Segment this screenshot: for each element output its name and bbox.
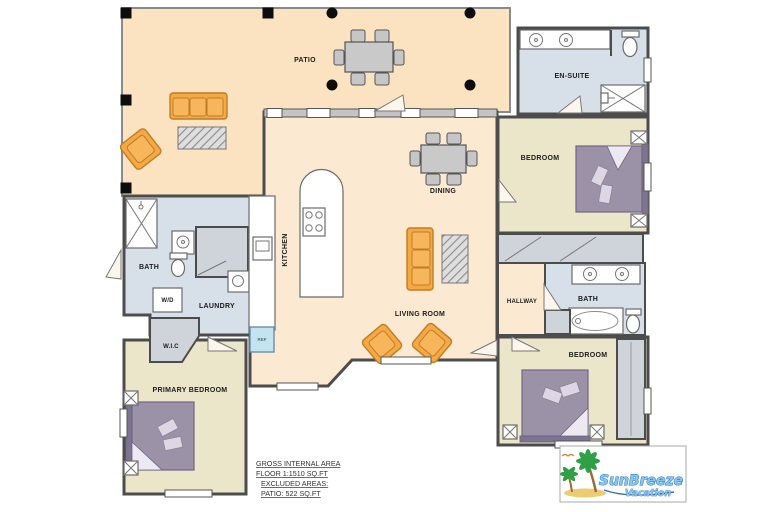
shower-left	[126, 199, 157, 248]
area-line-2: FLOOR 1:1510 SQ.FT	[256, 469, 329, 478]
primary-window-left	[120, 409, 127, 437]
bedroom-right-window-side	[644, 388, 651, 414]
laundry-closet	[196, 227, 248, 277]
hallway-label: HALLWAY	[507, 299, 537, 305]
logo-sand	[564, 489, 606, 498]
patio-rug	[178, 127, 226, 149]
dining-label: DINING	[430, 188, 457, 195]
patio-sofa	[170, 93, 227, 119]
kitchen-island	[300, 170, 343, 297]
bedroom-top-window-1	[644, 58, 651, 82]
bath-right-toilet	[626, 309, 641, 333]
bath-right-vanity	[572, 265, 640, 284]
ensuite-vanity	[520, 30, 610, 49]
fridge-label: REF	[258, 337, 267, 342]
fridge: REF	[250, 327, 274, 352]
area-line-1: GROSS INTERNAL AREA	[256, 459, 341, 468]
living-rug	[442, 235, 468, 283]
area-summary: GROSS INTERNAL AREA FLOOR 1:1510 SQ.FT E…	[256, 459, 341, 498]
living-sofa	[407, 228, 433, 290]
floorplan-drawing: W/D W.I.C REF	[0, 0, 768, 512]
logo-sub-text: Vacation	[625, 488, 671, 499]
kitchen-counter	[249, 196, 275, 330]
sink-bath-left	[172, 231, 194, 254]
living-window-left-bottom	[277, 383, 318, 390]
laundry-label: LAUNDRY	[199, 303, 235, 310]
primary-bedroom-label: PRIMARY BEDROOM	[153, 387, 228, 394]
hall-closet	[498, 234, 643, 263]
washer-dryer: W/D	[153, 288, 182, 312]
bath-linen-closet	[545, 310, 570, 334]
living-room-label: LIVING ROOM	[395, 311, 445, 318]
bathtub	[569, 308, 623, 334]
bedroom-top-window-2	[644, 163, 651, 191]
patio-label: PATIO	[294, 57, 316, 64]
bedroom-right-label: BEDROOM	[569, 352, 608, 359]
washer-dryer-label: W/D	[161, 298, 174, 304]
area-line-4: PATIO: 522 SQ.FT	[261, 489, 321, 498]
bedroom-top-label: BEDROOM	[521, 155, 560, 162]
bath-left-label: BATH	[139, 264, 159, 271]
brand-logo: SunBreeze Vacation	[560, 446, 686, 502]
living-window-bottom	[381, 357, 431, 364]
ensuite-label: EN-SUITE	[554, 73, 589, 80]
bath-right-label: BATH	[578, 296, 598, 303]
wic-label: W.I.C	[163, 344, 179, 350]
logo-brand-text: SunBreeze	[599, 473, 683, 489]
ensuite-shower	[601, 85, 645, 112]
bedroom-right-closet	[617, 339, 645, 439]
floorplan-page: W/D W.I.C REF	[0, 0, 768, 512]
area-line-3: EXCLUDED AREAS:	[261, 479, 328, 488]
bedroom-top-bed	[576, 144, 648, 214]
bedroom-right-bed	[520, 370, 590, 442]
primary-window-bottom	[165, 490, 212, 497]
kitchen-label: KITCHEN	[282, 233, 289, 266]
laundry-sink	[228, 271, 249, 292]
